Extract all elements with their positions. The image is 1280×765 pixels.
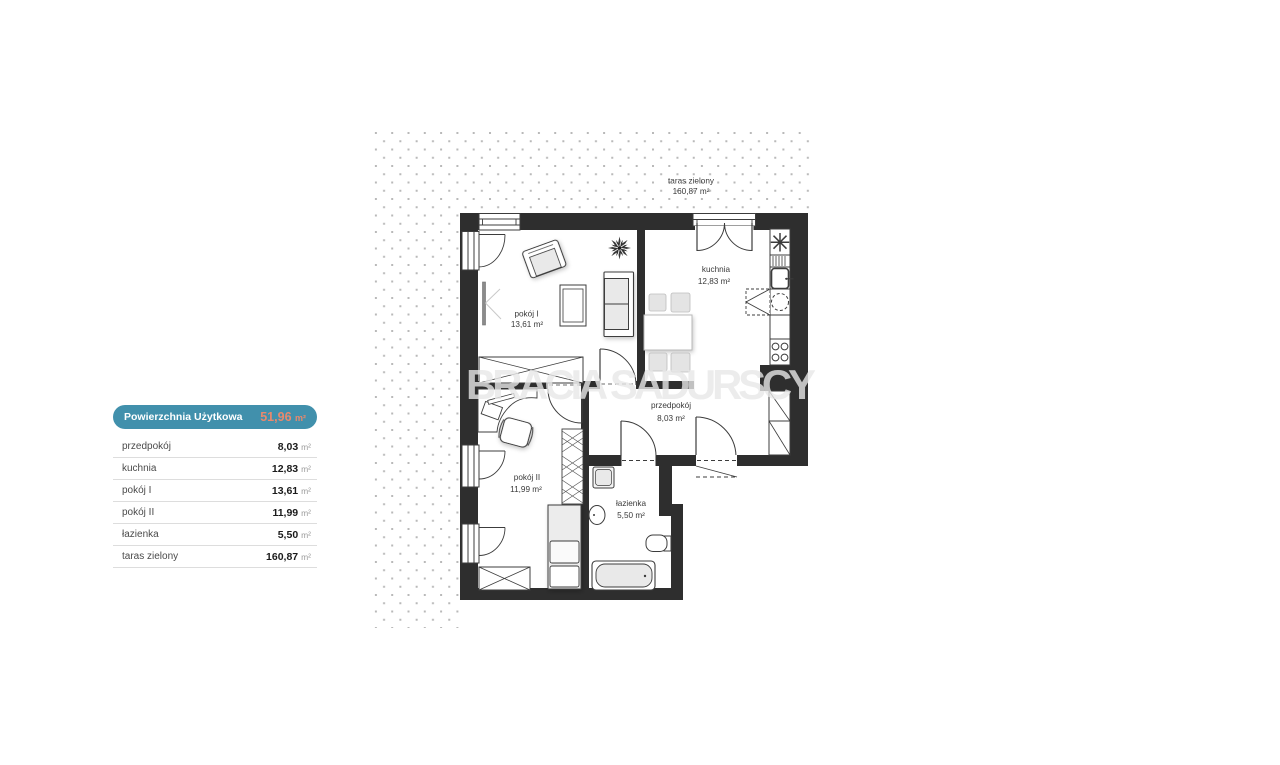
svg-text:12,83 m²: 12,83 m²	[698, 277, 731, 286]
svg-text:8,03 m²: 8,03 m²	[657, 414, 685, 423]
svg-text:5,50 m²: 5,50 m²	[617, 511, 645, 520]
svg-text:taras zielony: taras zielony	[668, 177, 715, 186]
svg-text:160,87 m²: 160,87 m²	[673, 187, 710, 196]
svg-text:pokój I: pokój I	[514, 310, 538, 319]
svg-text:pokój II: pokój II	[514, 473, 540, 482]
svg-text:13,61 m²: 13,61 m²	[511, 320, 544, 329]
svg-text:11,99 m²: 11,99 m²	[510, 485, 542, 494]
svg-text:BRACIA SADURSCY: BRACIA SADURSCY	[466, 361, 816, 408]
svg-text:kuchnia: kuchnia	[702, 265, 731, 274]
svg-text:łazienka: łazienka	[616, 499, 646, 508]
